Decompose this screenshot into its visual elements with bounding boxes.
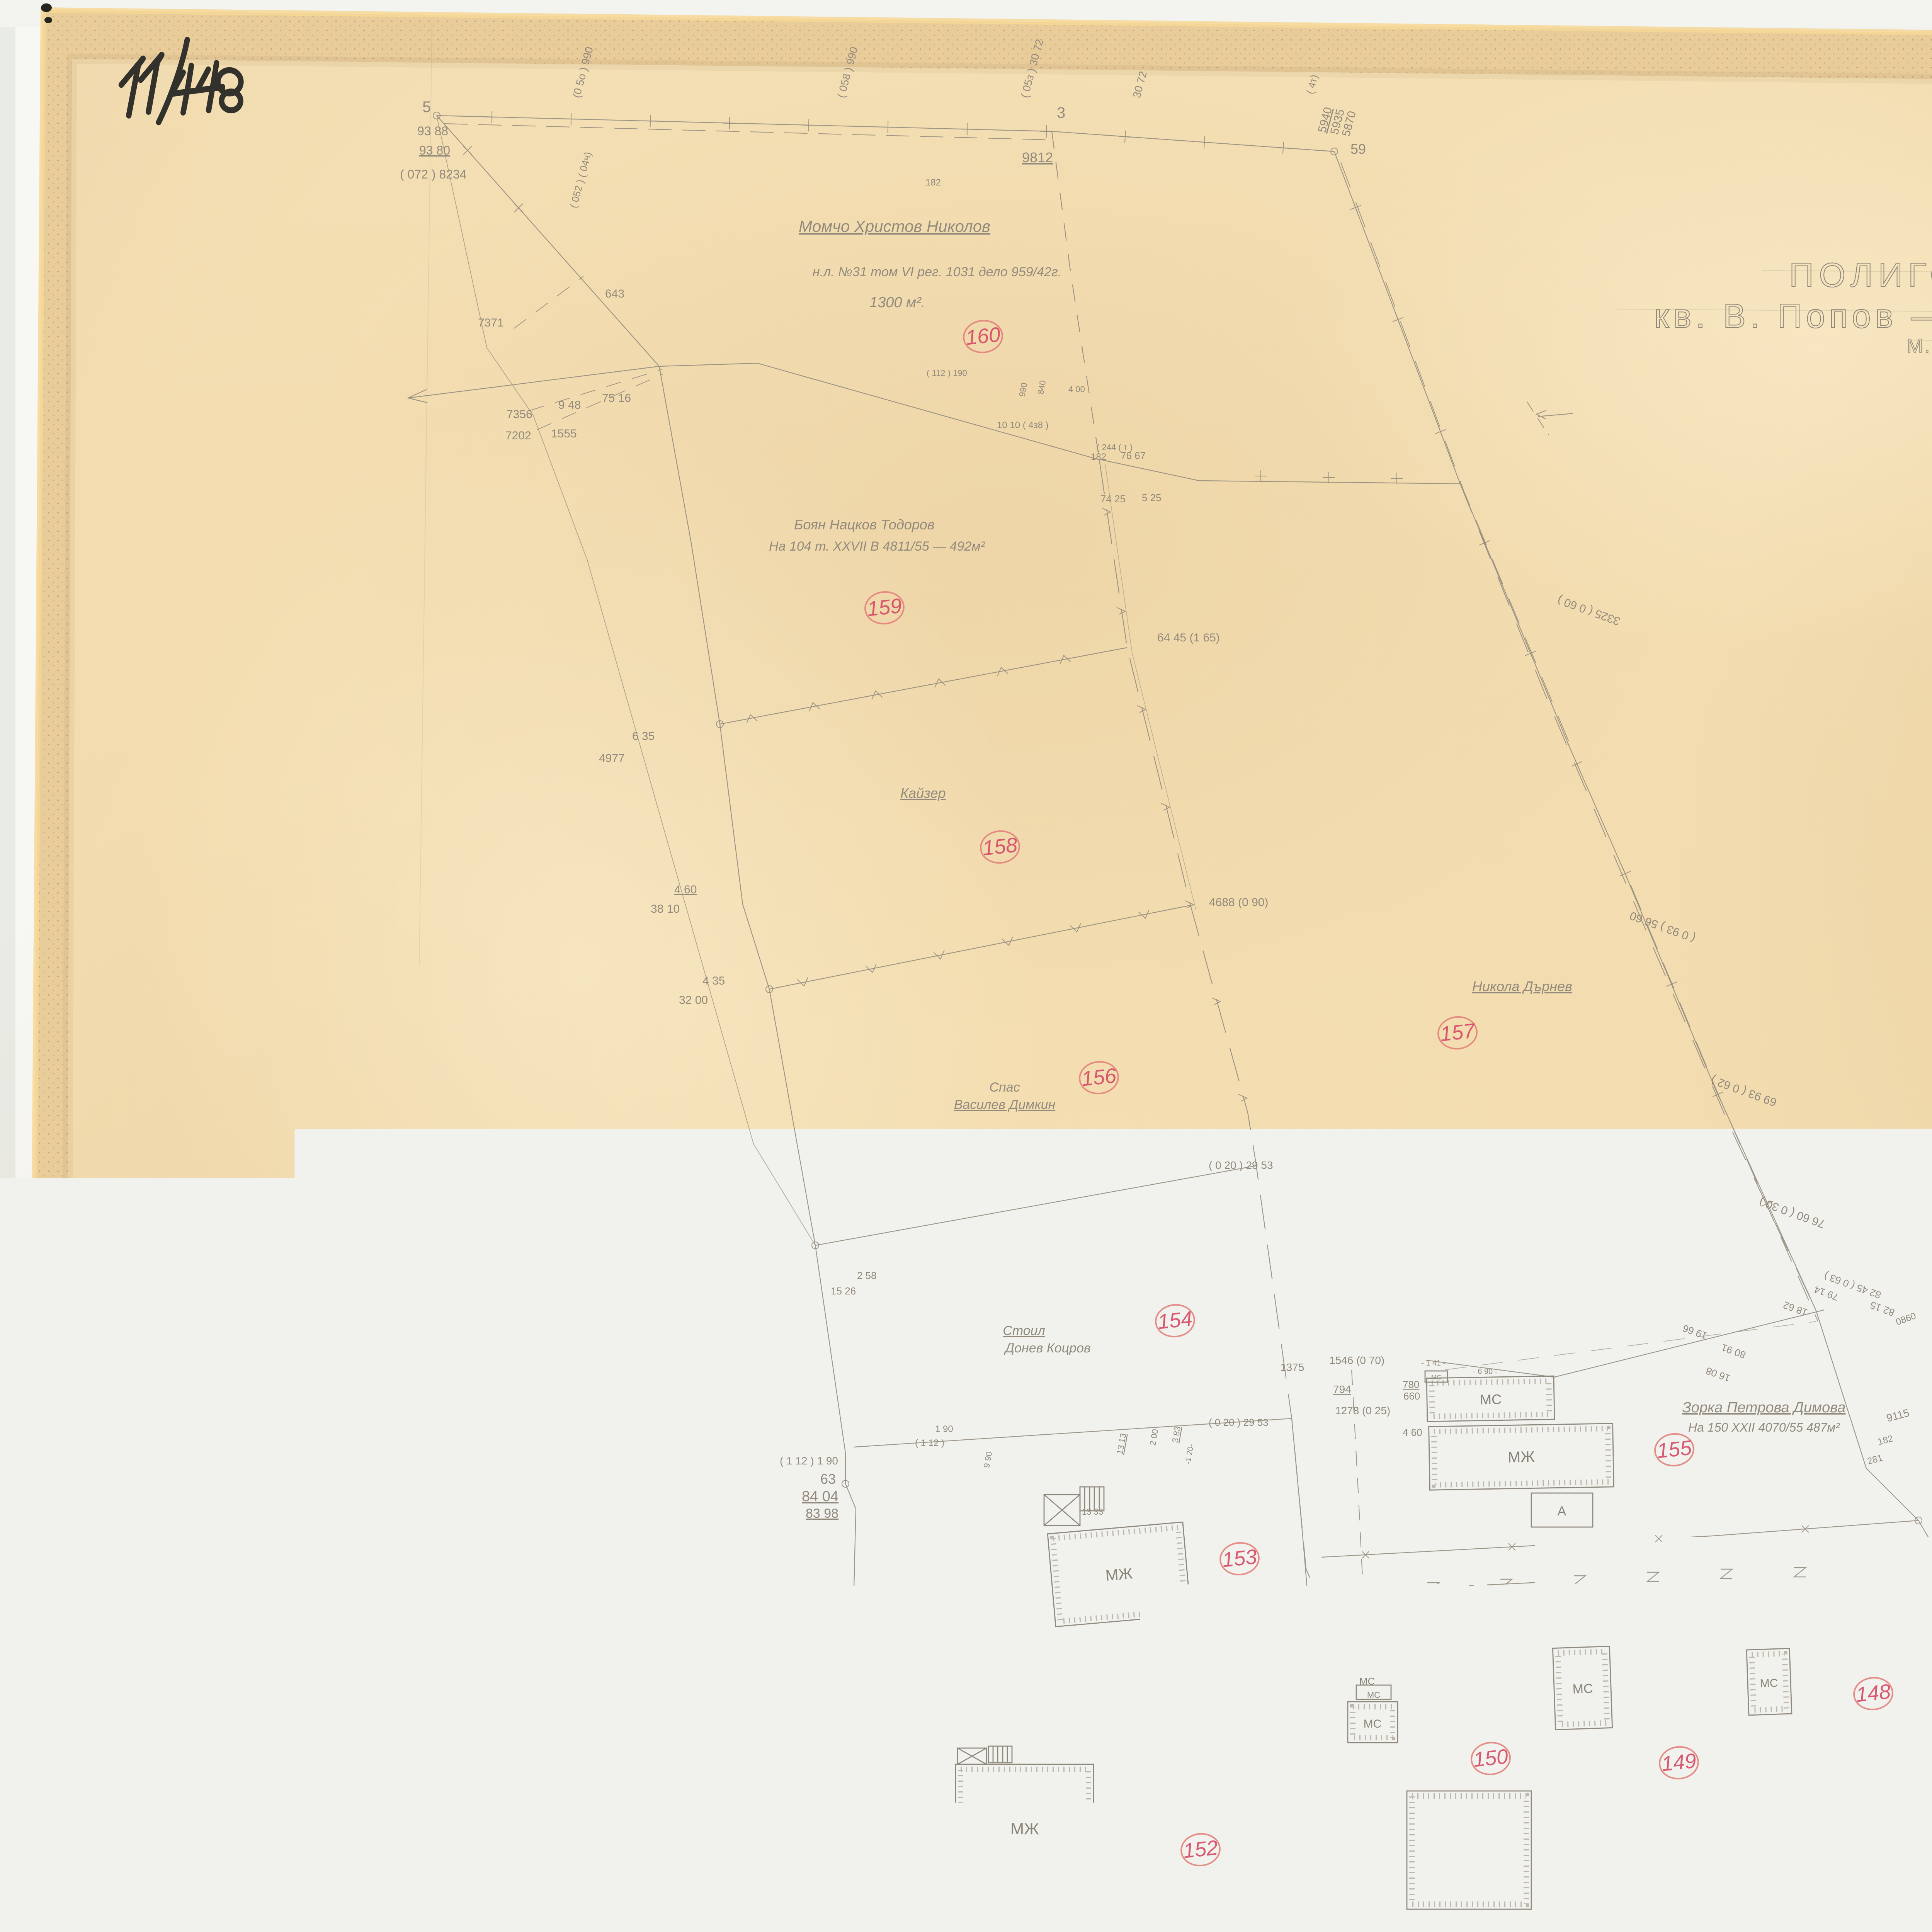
svg-text:5 25: 5 25: [1142, 492, 1162, 503]
svg-text:Стоил: Стоил: [1003, 1323, 1045, 1338]
svg-text:4 60: 4 60: [674, 883, 697, 896]
svg-text:6 35: 6 35: [632, 730, 655, 743]
svg-text:182: 182: [1091, 452, 1106, 462]
svg-text:На 150 XXII 4070/55 487м: На 150 XXII 4070/55 487м²: [1688, 1420, 1840, 1434]
svg-text:На 150 т.XXII 4070/55: На 150 т.XXII 4070/55: [1412, 1727, 1532, 1740]
svg-text:4688 (0 90): 4688 (0 90): [1209, 896, 1268, 909]
svg-text:МЖ: МЖ: [1642, 1842, 1670, 1860]
svg-text:6 91: 6 91: [954, 1749, 973, 1760]
svg-text:А: А: [1808, 1764, 1816, 1777]
svg-text:( 2 96 ) 61 25: ( 2 96 ) 61 25: [788, 1822, 857, 1835]
svg-text:1 77: 1 77: [1515, 1529, 1530, 1538]
svg-text:Спас: Спас: [989, 1080, 1020, 1095]
svg-text:( 15 50 ) 56 45: ( 15 50 ) 56 45: [788, 1915, 864, 1928]
svg-text:38 10: 38 10: [651, 903, 680, 915]
svg-text:4977: 4977: [599, 752, 625, 765]
svg-text:( 6 43 ) 57 12: ( 6 43 ) 57 12: [788, 1898, 857, 1911]
svg-text:7371: 7371: [478, 316, 504, 329]
svg-text:кв. В. Попов — Горна Баня: кв. В. Попов — Горна Баня: [1654, 297, 1932, 335]
svg-text:1300 м².: 1300 м².: [869, 294, 925, 311]
svg-text:4: 4: [1901, 1718, 1909, 1735]
svg-text:8 28: 8 28: [1162, 1571, 1172, 1587]
svg-text:153: 153: [1221, 1545, 1258, 1571]
svg-text:А: А: [1398, 1777, 1406, 1789]
svg-text:148: 148: [1855, 1680, 1892, 1706]
svg-text:84 04: 84 04: [802, 1488, 838, 1505]
svg-text:81 30: 81 30: [815, 1535, 844, 1548]
svg-text:64 45 (1 65): 64 45 (1 65): [1157, 631, 1220, 644]
svg-text:( 1 44 ) 69 67: ( 1 44 ) 69 67: [788, 1698, 857, 1711]
svg-text:6 92: 6 92: [954, 1723, 973, 1733]
svg-text:( 3 05 ) 62 50.: ( 3 05 ) 62 50.: [788, 1808, 861, 1821]
svg-text:( 4 25 ) 61 15: ( 4 25 ) 61 15: [788, 1837, 857, 1850]
svg-text:- 6 90 -: - 6 90 -: [1473, 1367, 1497, 1376]
svg-text:Момчо Христов Николов: Момчо Христов Николов: [799, 217, 990, 235]
svg-text:82 57: 82 57: [815, 1521, 844, 1534]
svg-text:794: 794: [1333, 1383, 1351, 1395]
svg-text:73 75: 73 75: [813, 1570, 842, 1583]
svg-text:МС: МС: [1364, 1718, 1382, 1730]
svg-text:156: 156: [1080, 1064, 1118, 1090]
svg-text:Никола Дърнев: Никола Дърнев: [1472, 978, 1572, 994]
svg-text:Софийка Илиева Янева: Софийка Илиева Янева: [886, 1546, 1031, 1560]
svg-text:75 16: 75 16: [602, 392, 631, 405]
svg-text:7202: 7202: [505, 429, 531, 442]
svg-text:71 11: 71 11: [821, 1666, 851, 1680]
svg-text:На 103 т XXVI д 4810/56: На 103 т XXVI д 4810/56: [883, 1563, 1017, 1576]
svg-text:55 10: 55 10: [1199, 1619, 1209, 1639]
svg-text:780: 780: [1403, 1379, 1419, 1390]
svg-text:Велин: Велин: [1441, 1674, 1476, 1688]
svg-text:На 104 т. XXVII В 4811/55 —: На 104 т. XXVII В 4811/55 — 492м²: [769, 539, 986, 554]
svg-text:А: А: [1558, 1504, 1566, 1519]
svg-text:93 88: 93 88: [417, 124, 448, 138]
svg-text:Зорка Петрова Димова: Зорка Петрова Димова: [1682, 1400, 1846, 1416]
svg-text:МЖ: МЖ: [1850, 1835, 1878, 1853]
svg-text:( 0 20 ) 29 53: ( 0 20 ) 29 53: [1209, 1159, 1273, 1171]
svg-text:МС: МС: [1760, 1677, 1778, 1690]
svg-text:-7 60-: -7 60-: [1082, 1554, 1092, 1575]
svg-text:( 1 12 ): ( 1 12 ): [915, 1438, 944, 1448]
svg-text:83 98: 83 98: [806, 1506, 838, 1521]
svg-text:4 00: 4 00: [1068, 384, 1085, 394]
svg-text:- 8 33 -: - 8 33 -: [1218, 1631, 1242, 1639]
svg-text:( 244 ( т ): ( 244 ( т ): [1097, 442, 1133, 452]
svg-text:На 182, т XXIII д 4394/57: На 182, т XXIII д 4394/57: [883, 1594, 1020, 1607]
svg-text:15 26: 15 26: [831, 1285, 856, 1297]
svg-text:2 58: 2 58: [857, 1270, 877, 1281]
svg-text:160: 160: [964, 323, 1002, 349]
svg-text:Боян Нацков Тодоров: Боян Нацков Тодоров: [794, 517, 935, 532]
svg-text:2: 2: [818, 1641, 831, 1667]
svg-text:93 80: 93 80: [419, 143, 450, 157]
svg-text:4 45: 4 45: [1199, 1561, 1209, 1577]
svg-text:7: 7: [1325, 1597, 1333, 1611]
svg-text:1375: 1375: [1280, 1361, 1304, 1373]
svg-text:А: А: [1612, 1764, 1619, 1777]
svg-text:( 1 47 ) 68 55: ( 1 47 ) 68 55: [788, 1715, 857, 1728]
svg-text:660: 660: [1403, 1390, 1420, 1402]
svg-text:Апиев: Апиев: [1450, 1704, 1486, 1718]
svg-text:попр за реална част 500.²: попр за реална част 500.²: [879, 1578, 1014, 1590]
svg-text:152: 152: [1182, 1836, 1219, 1862]
svg-text:13 33: 13 33: [1082, 1507, 1103, 1517]
svg-text:МЖ: МЖ: [1010, 1820, 1039, 1838]
svg-text:182: 182: [925, 177, 941, 188]
svg-text:158: 158: [981, 833, 1019, 860]
svg-text:1555: 1555: [551, 427, 577, 440]
svg-text:- 1 24 -: - 1 24 -: [946, 1775, 970, 1783]
svg-text:4: 4: [1916, 1493, 1926, 1513]
svg-text:( 072 ) 8234: ( 072 ) 8234: [400, 167, 467, 181]
svg-text:10 10 ( 4з8 ): 10 10 ( 4з8 ): [997, 420, 1049, 430]
svg-text:59: 59: [1350, 141, 1366, 157]
svg-text:6 27: 6 27: [1178, 1567, 1187, 1583]
svg-text:9812: 9812: [1022, 150, 1053, 165]
svg-text:1546 (0 70): 1546 (0 70): [1329, 1354, 1384, 1366]
svg-text:МЖ: МЖ: [1508, 1448, 1535, 1466]
svg-text:МС: МС: [1431, 1374, 1441, 1381]
svg-text:ПОЛИГОН — 10: ПОЛИГОН — 10: [1789, 256, 1932, 294]
svg-text:- 1 20 -: - 1 20 -: [1066, 1715, 1091, 1723]
svg-text:5 60: 5 60: [1372, 1653, 1390, 1664]
svg-text:Кирил: Кирил: [1816, 1927, 1851, 1932]
svg-text:1 90: 1 90: [935, 1424, 953, 1434]
svg-text:7356: 7356: [507, 408, 532, 421]
svg-text:МС: МС: [1480, 1391, 1502, 1408]
svg-text:159: 159: [866, 594, 903, 621]
svg-text:65 72: 65 72: [825, 1767, 854, 1779]
svg-text:643: 643: [605, 287, 624, 300]
svg-text:150: 150: [1472, 1745, 1509, 1771]
svg-text:4 60: 4 60: [1403, 1427, 1422, 1438]
svg-text:( 0 20 ) 29 53: ( 0 20 ) 29 53: [1209, 1417, 1269, 1428]
svg-text:14 30: 14 30: [1039, 1627, 1061, 1636]
svg-text:М. 1:300: М. 1:300: [1907, 335, 1932, 357]
svg-text:74 25: 74 25: [1100, 493, 1126, 505]
svg-text:( 2 15 ) 63 30: ( 2 15 ) 63 30: [788, 1794, 857, 1806]
svg-text:МС: МС: [1367, 1690, 1380, 1700]
svg-text:- 9 07 -: - 9 07 -: [1050, 1899, 1077, 1909]
svg-text:( 112 ) 190: ( 112 ) 190: [927, 368, 967, 378]
svg-text:МЖ: МЖ: [1105, 1565, 1133, 1584]
svg-text:63: 63: [820, 1471, 836, 1487]
svg-text:4 35: 4 35: [702, 975, 725, 987]
svg-text:Иван Кацарски: Иван Кацарски: [1175, 1798, 1277, 1814]
svg-text:149: 149: [1660, 1749, 1697, 1776]
svg-text:32 00: 32 00: [679, 994, 708, 1007]
svg-text:155: 155: [1656, 1436, 1693, 1463]
svg-text:9 48: 9 48: [558, 399, 581, 412]
svg-text:- 1 41 -: - 1 41 -: [1421, 1359, 1446, 1367]
svg-text:3: 3: [1057, 104, 1065, 121]
svg-text:Донев Коцров: Донев Коцров: [1003, 1341, 1091, 1355]
svg-text:МС: МС: [1572, 1681, 1593, 1697]
svg-text:56 40: 56 40: [1190, 1613, 1201, 1633]
svg-text:4 20: 4 20: [1376, 1669, 1394, 1679]
svg-text:- 2 56 -: - 2 56 -: [1580, 1545, 1605, 1553]
svg-text:5: 5: [422, 99, 431, 116]
svg-text:Кайзер: Кайзер: [900, 785, 946, 801]
svg-text:н.л. №31 том VI рег. 1031 дело: н.л. №31 том VI рег. 1031 дело 959/42г.: [813, 265, 1061, 279]
svg-text:МЖ: МЖ: [1455, 1841, 1483, 1859]
svg-text:Василев Димкин: Василев Димкин: [954, 1097, 1056, 1112]
svg-text:66 22: 66 22: [825, 1751, 854, 1764]
svg-text:154: 154: [1156, 1307, 1194, 1333]
svg-text:1278 (0 25): 1278 (0 25): [1335, 1405, 1390, 1417]
svg-text:Йорданов: Йорданов: [1436, 1690, 1493, 1704]
svg-text:157: 157: [1439, 1019, 1477, 1046]
